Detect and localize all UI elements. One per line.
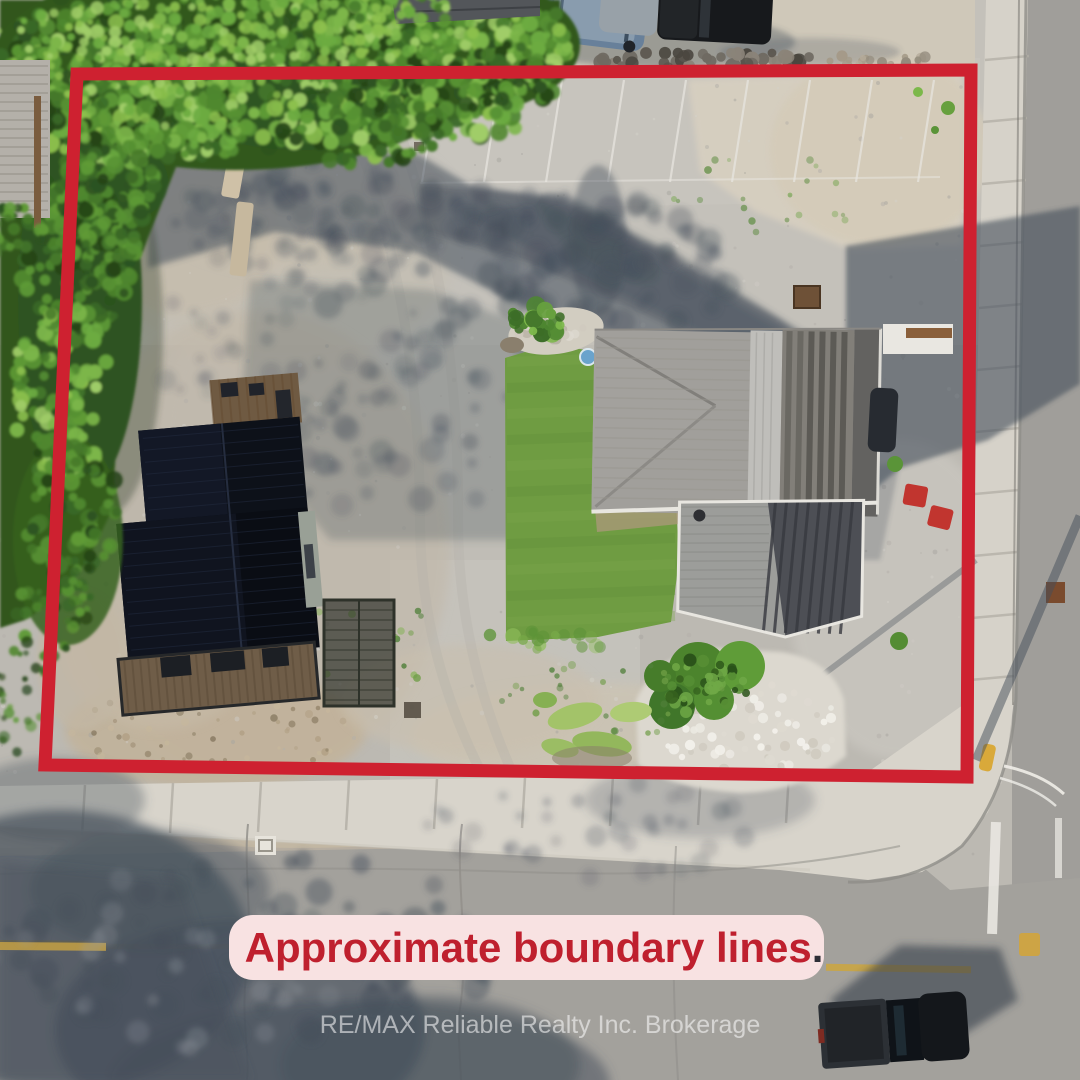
- svg-text:RE/MAX Reliable Realty Inc. Br: RE/MAX Reliable Realty Inc. Brokerage: [320, 1011, 760, 1039]
- svg-text:Approximate boundary lines.: Approximate boundary lines.: [245, 924, 824, 971]
